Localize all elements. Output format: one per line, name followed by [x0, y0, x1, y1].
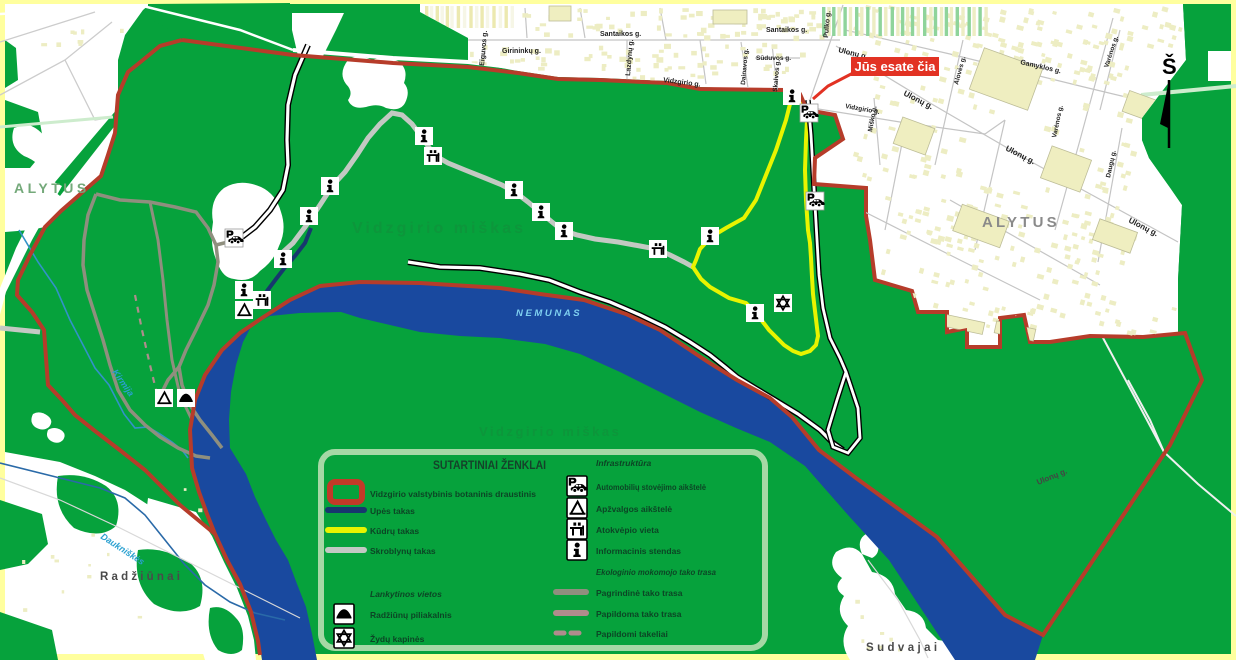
- svg-text:Santaikos g.: Santaikos g.: [766, 27, 807, 34]
- svg-text:Vidzgirio miškas: Vidzgirio miškas: [479, 424, 621, 439]
- svg-text:Jūs esate čia: Jūs esate čia: [855, 59, 937, 74]
- svg-text:Žydų kapinės: Žydų kapinės: [370, 633, 425, 644]
- svg-text:Sudvajai: Sudvajai: [866, 642, 941, 654]
- svg-text:Vidzgirio valstybinis botanini: Vidzgirio valstybinis botaninis draustin…: [370, 489, 536, 499]
- svg-text:ALYTUS: ALYTUS: [14, 180, 90, 196]
- svg-text:Apžvalgos aikštelė: Apžvalgos aikštelė: [596, 504, 672, 514]
- svg-text:Pagrindinė tako trasa: Pagrindinė tako trasa: [596, 588, 683, 598]
- svg-text:Upės takas: Upės takas: [370, 506, 415, 516]
- svg-text:Informacinis stendas: Informacinis stendas: [596, 546, 681, 556]
- svg-text:Kūdrų takas: Kūdrų takas: [370, 526, 419, 536]
- svg-text:Vidzgirio miškas: Vidzgirio miškas: [352, 220, 526, 237]
- svg-text:SUTARTINIAI ŽENKLAI: SUTARTINIAI ŽENKLAI: [433, 457, 546, 472]
- svg-text:ALYTUS: ALYTUS: [982, 214, 1060, 231]
- svg-text:Radžiūnai: Radžiūnai: [100, 571, 183, 583]
- svg-text:Sūduvos g.: Sūduvos g.: [756, 55, 791, 62]
- svg-text:Lankytinos vietos: Lankytinos vietos: [370, 589, 442, 599]
- svg-text:Papildomi takeliai: Papildomi takeliai: [596, 629, 668, 639]
- svg-text:Santaikos g.: Santaikos g.: [600, 31, 641, 38]
- svg-text:Ekologinio mokomojo tako trasa: Ekologinio mokomojo tako trasa: [596, 567, 716, 577]
- svg-text:Infrastruktūra: Infrastruktūra: [596, 458, 652, 468]
- svg-text:NEMUNAS: NEMUNAS: [516, 308, 582, 319]
- svg-text:Skroblynų takas: Skroblynų takas: [370, 546, 436, 556]
- svg-text:Radžiūnų piliakalnis: Radžiūnų piliakalnis: [370, 610, 452, 620]
- svg-text:Papildoma tako trasa: Papildoma tako trasa: [596, 609, 682, 619]
- svg-text:Automobilių stovėjimo aikštelė: Automobilių stovėjimo aikštelė: [596, 482, 706, 492]
- svg-text:Atokvėpio vieta: Atokvėpio vieta: [596, 525, 659, 535]
- svg-text:Girininkų g.: Girininkų g.: [502, 48, 541, 55]
- svg-text:Š: Š: [1162, 54, 1177, 79]
